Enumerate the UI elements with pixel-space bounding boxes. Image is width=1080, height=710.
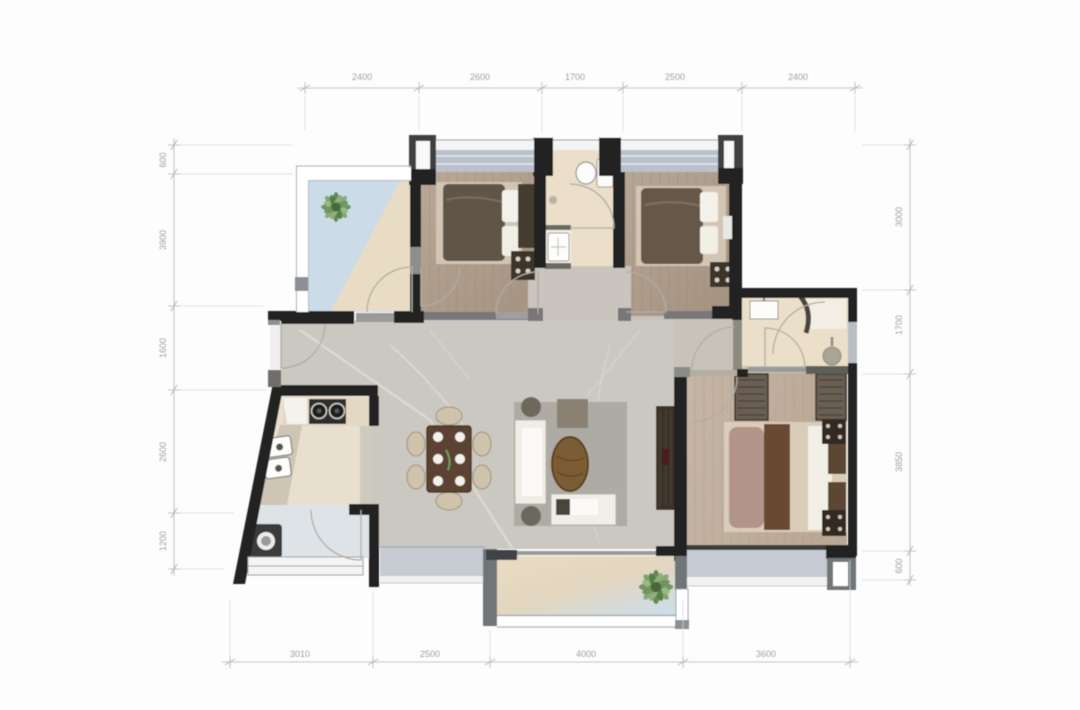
svg-text:2500: 2500 xyxy=(665,72,685,82)
svg-text:2500: 2500 xyxy=(420,649,440,659)
svg-text:2600: 2600 xyxy=(470,72,490,82)
svg-text:1700: 1700 xyxy=(565,72,585,82)
svg-text:2600: 2600 xyxy=(158,442,168,462)
svg-text:3600: 3600 xyxy=(756,649,776,659)
svg-text:1700: 1700 xyxy=(894,315,904,335)
svg-text:3010: 3010 xyxy=(290,649,310,659)
svg-text:3850: 3850 xyxy=(894,452,904,472)
svg-text:3000: 3000 xyxy=(894,207,904,227)
svg-text:2400: 2400 xyxy=(352,72,372,82)
svg-text:1600: 1600 xyxy=(158,338,168,358)
svg-text:4000: 4000 xyxy=(576,649,596,659)
svg-text:1200: 1200 xyxy=(158,531,168,551)
svg-text:600: 600 xyxy=(158,152,168,167)
svg-text:600: 600 xyxy=(894,558,904,573)
svg-text:2400: 2400 xyxy=(788,72,808,82)
svg-text:3900: 3900 xyxy=(158,230,168,250)
